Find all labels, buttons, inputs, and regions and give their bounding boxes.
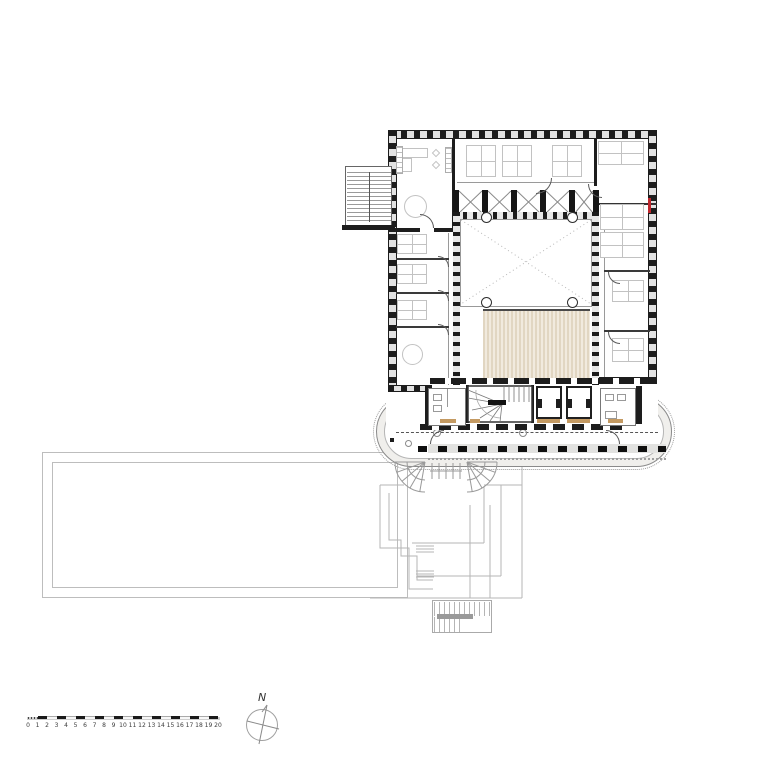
office-door-gap — [420, 228, 434, 232]
desk-pair — [397, 300, 427, 320]
scale-bar-segment — [28, 717, 38, 719]
atrium-corner-column — [567, 297, 578, 308]
wc-fixture — [433, 394, 442, 401]
terrace-step-marks — [416, 546, 434, 577]
scale-bar-segment — [95, 716, 105, 719]
scale-bar-segment — [209, 716, 219, 719]
atrium-wall-east — [592, 212, 599, 385]
site-outline-inner — [52, 462, 398, 588]
scale-bar-segment — [85, 716, 95, 719]
desk-cluster — [600, 232, 644, 258]
scale-bar-segment — [152, 716, 162, 719]
scale-bar-segment — [199, 716, 209, 719]
scale-bar-segment — [171, 716, 181, 719]
wall-east — [648, 130, 657, 384]
elevator-2 — [566, 386, 592, 419]
wc-fixture — [433, 405, 442, 412]
gallery-cap-post — [390, 438, 394, 442]
scale-tick-label: 20 — [212, 722, 224, 730]
external-stair-treads-right — [370, 172, 391, 222]
scale-bar-segment — [190, 716, 200, 719]
wall-north — [388, 130, 657, 139]
desk-cluster — [600, 204, 644, 230]
external-stair-treads-left — [347, 172, 369, 222]
desk-cluster — [466, 145, 496, 177]
scale-bar-segment — [180, 716, 190, 719]
desk-cluster — [502, 145, 532, 177]
scale-bar-segment — [76, 716, 86, 719]
elevator-door-jamb — [586, 399, 590, 408]
scale-bar: 01234567891011121314151617181920 — [26, 712, 226, 734]
north-label: N — [258, 691, 266, 704]
lower-stair-treads-lower — [434, 617, 464, 632]
scale-bar-segment — [161, 716, 171, 719]
floor-plan-canvas: N 01234567891011121314151617181920 — [0, 0, 780, 780]
scale-bar-segment — [142, 716, 152, 719]
scale-bar-segment — [66, 716, 76, 719]
wc-fixture — [605, 411, 617, 419]
corridor-line-west-wing — [448, 233, 449, 385]
scale-bar-segment — [38, 716, 48, 719]
manager-desk — [400, 148, 428, 158]
scale-bar-segment — [133, 716, 143, 719]
courtyard-deck — [483, 309, 590, 378]
corridor-line-top — [457, 182, 594, 183]
atrium-corner-column — [567, 212, 578, 223]
main-stair-winder — [466, 384, 534, 424]
wc-fixture — [605, 394, 614, 401]
atrium-diagonals — [459, 216, 593, 308]
curved-garden-stairs — [390, 458, 510, 510]
wc-partition — [447, 389, 448, 407]
scale-bar-segment — [123, 716, 133, 719]
desk-cluster — [598, 141, 644, 165]
scale-bar-segment — [104, 716, 114, 719]
desk-cluster — [552, 145, 582, 177]
elevator-door-jamb — [568, 399, 572, 408]
threshold-sill — [470, 419, 480, 423]
external-stair — [345, 166, 392, 227]
threshold-sill — [608, 419, 623, 423]
desk-pair — [397, 264, 427, 284]
gallery-column-row — [418, 446, 666, 452]
atrium-corner-column — [481, 297, 492, 308]
red-revision-marker — [648, 198, 651, 213]
threshold-sill — [537, 419, 560, 423]
round-meeting-table — [402, 344, 423, 365]
lower-stair — [432, 600, 492, 633]
scale-bar-segment — [57, 716, 67, 719]
north-compass-icon — [238, 688, 298, 750]
external-stair-divider — [369, 172, 370, 222]
threshold-sill — [567, 419, 590, 423]
top-right-wall-v — [594, 139, 597, 186]
elevator-door-jamb — [556, 399, 560, 408]
shelf-unit — [445, 147, 452, 173]
wc-fixture — [617, 394, 626, 401]
bridge-x-bays — [453, 190, 599, 214]
core-wall-north — [430, 378, 655, 384]
elevator-1 — [536, 386, 562, 419]
gallery-edge-dots — [428, 456, 666, 460]
scale-bar-segment — [47, 716, 57, 719]
desk-pair — [397, 234, 427, 254]
atrium-corner-column — [481, 212, 492, 223]
scale-bar-segment — [114, 716, 124, 719]
core-wall-east-stub — [636, 386, 642, 424]
gallery-centerline-node — [519, 429, 527, 437]
threshold-sill — [440, 419, 456, 423]
shelf-unit — [396, 146, 403, 174]
lower-stair-landing — [437, 614, 473, 619]
gallery-cap-column — [405, 440, 412, 447]
elevator-door-jamb — [538, 399, 542, 408]
